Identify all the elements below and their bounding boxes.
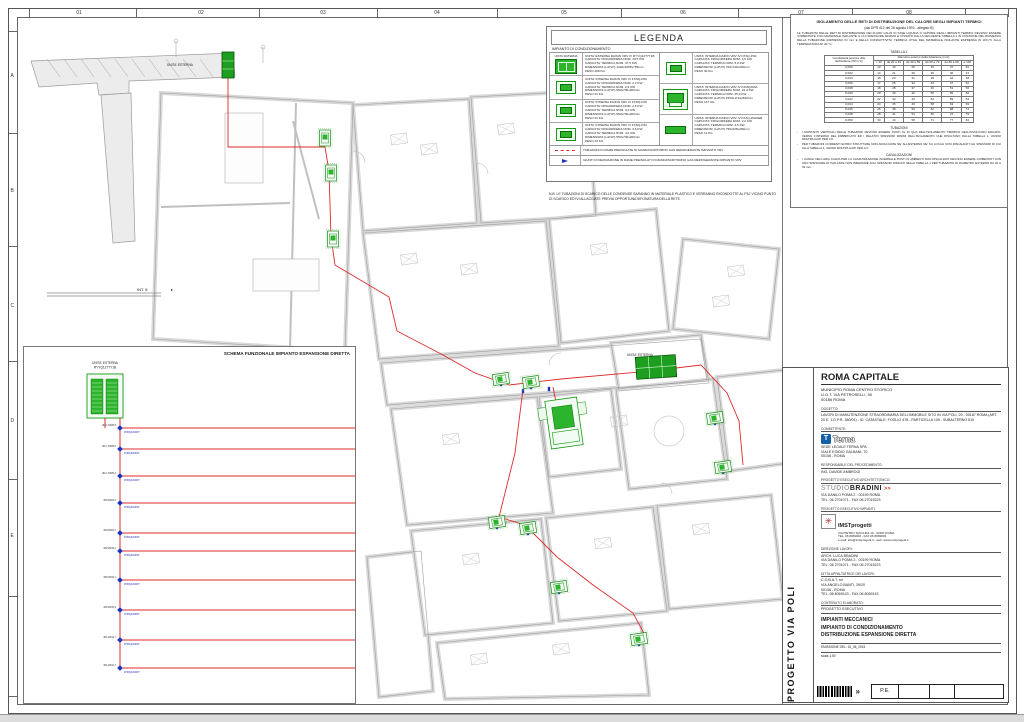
trunk-pipe-label: Ø9,5/Ø19,1: [104, 576, 117, 579]
insulation-table: Conduttività termica utile dell'isolante…: [824, 55, 974, 124]
legend-item-text: UNITA' INTERNA DAIKIN VRV IV FXMQ200ACAP…: [693, 84, 760, 114]
legend-item-icon-cell: [660, 53, 693, 83]
ruler-letter: A: [11, 73, 14, 79]
legend-icon-label: UNITA' ESTERNA: [555, 54, 578, 58]
ruler-number: 05: [561, 10, 567, 16]
schema-panel: SCHEMA FUNZIONALE IMPIANTO ESPANSIONE DI…: [23, 346, 356, 704]
refnet-joint-icon: [117, 665, 123, 671]
fxsq-unit-icon: [666, 62, 686, 75]
trunk-pipe-label: Ø12,7/Ø25,4: [102, 472, 116, 475]
legend-item-text: UNITA' INTERNA DAIKIN VRV IV FXSQ-P20CAP…: [583, 76, 649, 98]
ruler-letter: E: [11, 533, 14, 539]
survey-marker: [261, 45, 265, 63]
legend-item: UNITA' INTERNA DAIKIN VRV IV FXAQ-20AVEB…: [660, 115, 769, 145]
barcode-icon: [817, 686, 853, 697]
ruler-tick: [9, 596, 17, 597]
progetto-esecutivo: PROGETTO ESECUTIVO: [821, 607, 1001, 614]
joint-model-label: KHRQ22M20T: [124, 671, 140, 674]
table-cell: 77: [942, 118, 961, 123]
legend-item: UNITA' INTERNA DAIKIN VRV IV FXSQ-P20CAP…: [550, 76, 659, 99]
joint-model-label: KHRQ22M20T: [124, 643, 140, 646]
legend-column-left: UNITA' ESTERNAUNITA' ESTERNA DAIKIN VRV …: [550, 53, 659, 145]
schema-unit-branch: KHRQ22M20TØ9,5/Ø15,9Ø6,4/Ø12,710-UFFICI …: [104, 596, 355, 624]
refnet-joint-icon: [117, 500, 123, 506]
ruler-tick: [497, 9, 498, 17]
resp-label: RESPONSABILE DEL PROCEDIMENTO:: [821, 463, 1001, 469]
ruler-tick: [9, 696, 17, 697]
plan-outdoor-unit-label: UNITA' ESTERNA: [627, 353, 653, 357]
spec-table-title: TABELLA 1: [797, 50, 1001, 54]
trunk-pipe-label: Ø9,5/Ø22,2: [104, 499, 117, 502]
legend-text-line: PESO 11 KG: [695, 132, 763, 136]
legend-line-items: TUBAZIONI IN RAME PREISOLATE DI MANDATA/…: [549, 146, 769, 166]
table-cell: 30: [873, 118, 884, 123]
ditta-label: DITTA APPALTATRICE DEI LAVORI:: [821, 572, 1001, 578]
trunk-pipe-label: Ø12,7/Ø28,6: [102, 445, 116, 448]
refnet-joint-icon: [117, 530, 123, 536]
table-row-header: Conduttività termica utile dell'isolante…: [824, 55, 873, 65]
legend-item-icon-cell: [660, 115, 693, 145]
studio-line: TEL. 06 2701071 - FAX 06 27019223: [821, 498, 1001, 503]
spec-note: -PER TUBAZIONI CORRENTI ENTRO STRUTTURE …: [797, 143, 1001, 151]
legend-item: UNITA' ESTERNAUNITA' ESTERNA DAIKIN VRV …: [550, 53, 659, 76]
meeting-table: [225, 113, 263, 183]
joint-model-label: KHRQ22M20T: [124, 431, 140, 434]
trunk-pipe-label: Ø9,5/Ø15,9: [104, 606, 117, 609]
imst-line: e-mail: info@imstprogetti.it - web: www.…: [838, 539, 908, 543]
refnet-joint-icon: [117, 607, 123, 613]
table-cell: 44: [884, 118, 903, 123]
legend-text-line: PESO 23 KG: [585, 140, 647, 144]
joint-model-label: KHRQ22M20T: [124, 554, 140, 557]
legend-note: N.B. LE TUBAZIONI DI SCARICO DELLE CONDE…: [549, 192, 779, 201]
title-block: PROGETTO VIA POLI ROMA CAPITALE MUNICIPI…: [782, 367, 1009, 703]
drawing-sheet: 0102030405060708 ABCDE UNITA' ESTERNA UN…: [8, 8, 1017, 714]
joint-model-label: KHRQ22M20T: [124, 536, 140, 539]
oggetto-label: OGGETTO:: [821, 407, 1001, 413]
meeting-table: [253, 259, 319, 291]
joint-model-label: KHRQ22M20T: [124, 479, 140, 482]
legend-text-line: PESO 21 KG: [585, 93, 647, 97]
legend-item-text: UNITA' INTERNA DAIKIN VRV IV FXSQ-P40CAP…: [693, 53, 759, 83]
schema-unit-branch: KHRQ22M20TØ9,5/Ø19,1Ø6,4/Ø12,709-ARCHIVI…: [104, 566, 355, 594]
schema-unit-branch: KHRQ22M20TØ12,7/Ø28,6Ø6,4/Ø12,701-UFFICI…: [102, 435, 355, 463]
spec-note-text: PER TUBAZIONI CORRENTI ENTRO STRUTTURE N…: [802, 143, 1001, 151]
refnet-joint-icon: [117, 548, 123, 554]
refnet-joint-icon: [117, 425, 123, 431]
room-wall: [549, 209, 669, 343]
terna-logo-word: Terna: [833, 434, 856, 444]
direzione-lavori-label: DIREZIONE LAVORI:: [821, 547, 1001, 553]
legend-item: UNITA' INTERNA DAIKIN VRV IV FXSQ-P40CAP…: [660, 53, 769, 84]
legend-text-line: PESO 21 KG: [585, 117, 647, 121]
fxaq-unit-icon: [665, 126, 686, 134]
table-cell: 71: [923, 118, 942, 123]
schema-unit-branch: KHRQ22M20TØ9,5/Ø22,2Ø6,4/Ø12,706-SALA RI…: [104, 519, 355, 547]
legend-item-text: UNITA' INTERNA DAIKIN VRV IV FXSQ-P25CAP…: [583, 100, 649, 122]
spec-canal-text: I CANALI DELL'ARIA CALDA PER LA CLIMATIZ…: [802, 158, 1001, 169]
terna-line: 00156 - ROMA: [821, 454, 1001, 459]
refnet-joint-icon: [117, 446, 123, 452]
ruler-tick: [9, 133, 17, 134]
legend-line-item: TUBAZIONI IN RAME PREISOLATE DI MANDATA/…: [549, 146, 769, 156]
joint-model-label: KHRQ22M20T: [124, 583, 140, 586]
schema-unit-branch: KHRQ22M20TØ12,7/Ø28,6Ø6,4/Ø12,702-SEGRET…: [102, 414, 355, 442]
trunk-pipe-label: Ø6,4/Ø12,7: [104, 636, 117, 639]
ruler-tick: [1008, 9, 1009, 17]
schema-unit-branch: KHRQ22M20TØ6,4/Ø12,7Ø6,4/Ø12,712-IMPIANT…: [104, 660, 355, 684]
oggetto-text: LAVORI DI MANUTENZIONE STRAORDINARIA DEL…: [821, 413, 1001, 422]
spec-notes: -I MONTANTI VERTICALI DELLE TUBAZIONI DE…: [797, 131, 1001, 151]
schema-unit-branch: KHRQ22M20TØ9,5/Ø22,2Ø9,5/Ø22,205-SALA FO…: [104, 488, 355, 517]
empty-cell: [929, 685, 954, 698]
room-wall: [363, 221, 559, 359]
table-cell: 84: [961, 118, 974, 123]
room-wall: [411, 519, 553, 635]
ruler-tick: [9, 479, 17, 480]
spec-subtitle: (dal DPR 412 del 26 agosto 1993 - allega…: [797, 26, 1001, 30]
table-cell: 58: [904, 118, 923, 123]
fxsq-unit-icon: [324, 164, 338, 183]
dl-line: TEL. 06 2701071 - FAX 06 27019223: [821, 563, 1001, 568]
room-wall: [673, 239, 779, 339]
ruler-tick: [136, 9, 137, 17]
legend-item-text: UNITA' ESTERNA DAIKIN VRV IV RYYQ12T7Y1B…: [583, 53, 657, 75]
schema-outdoor-model: RYYQ12T7Y1B: [94, 366, 116, 370]
contenuto-label: CONTENUTO ELABORATO:: [821, 601, 1001, 607]
ruler-number: 06: [680, 10, 686, 16]
legend-item-icon-cell: UNITA' ESTERNA: [550, 53, 583, 75]
condensate-joint-icon: [522, 389, 524, 393]
table-row: 0,050304458717784: [824, 118, 973, 123]
schema-outdoor-label: UNITA' ESTERNA: [92, 361, 119, 365]
content-line: DISTRIBUZIONE ESPANSIONE DIRETTA: [821, 632, 1001, 640]
legend-item-text: UNITA' INTERNA DAIKIN VRV IV FXAQ-20AVEB…: [693, 115, 765, 145]
ruler-tick: [9, 31, 17, 32]
legend-line-item: GIUNTI DI DERIVAZIONE IN RAME PREISOLATI…: [549, 156, 769, 166]
room-wall: [657, 495, 783, 609]
blue-joint-icon: [550, 156, 581, 165]
room-wall: [353, 99, 477, 231]
resp-name: ING. DAVIDE AMBROGI: [821, 470, 1001, 475]
committente-label: COMMITTENTE:: [821, 427, 1001, 433]
trunk-pipe-label: Ø9,5/Ø22,2: [104, 529, 117, 532]
legend-item-icon-cell: [660, 84, 693, 114]
client-line: 00186 ROMA: [821, 397, 1001, 402]
ruler-tick: [621, 9, 622, 17]
empty-cell: [954, 685, 1003, 698]
fxsq-unit-icon: [556, 104, 576, 117]
ruler-letter: D: [11, 418, 15, 424]
room-wall: [546, 507, 667, 621]
ruler-letter: C: [11, 303, 15, 309]
legend-item: UNITA' INTERNA DAIKIN VRV IV FXMQ200ACAP…: [660, 84, 769, 115]
schema-unit-branch: KHRQ22M20TØ12,7/Ø25,4Ø6,4/Ø12,704-SALA R…: [102, 462, 355, 490]
legend-item-text: UNITA' INTERNA DAIKIN VRV IV FXSQ-P32CAP…: [583, 123, 649, 145]
legend-subtitle: IMPIANTO DI CONDIZIONAMENTO: [552, 47, 769, 51]
studio-arrows-icon: >>: [884, 486, 891, 492]
legend-text-line: PESO 30 KG: [695, 70, 757, 74]
room-wall: [391, 397, 553, 525]
ruler-tick: [377, 9, 378, 17]
fxmq-unit-icon: [663, 89, 688, 110]
legend-text-line: PESO 268 KG: [585, 70, 655, 74]
legend-item-icon-cell: [550, 76, 583, 98]
legend-item: UNITA' INTERNA DAIKIN VRV IV FXSQ-P32CAP…: [550, 123, 659, 145]
table-cell: 0,050: [824, 118, 873, 123]
blue-joint-glyph: [562, 159, 568, 163]
content-line: IMPIANTO DI CONDIZIONAMENTO: [821, 625, 1001, 633]
title-block-footer: » P.E.: [817, 684, 1004, 698]
schema-unit-branch: KHRQ22M20TØ6,4/Ø12,7Ø6,4/Ø12,711-SALA RI…: [104, 626, 355, 654]
room-wall: [616, 379, 727, 489]
ruler-number: 04: [434, 10, 440, 16]
impianti-label: PROGETTO ESECUTIVO IMPIANTI:: [821, 507, 1001, 513]
schema-diagram: UNITA' ESTERNARYYQ12T7Y1BKHRQ22M20TØ12,7…: [24, 347, 355, 703]
imst-name: IMSTprogetti: [838, 523, 872, 529]
project-vertical-title: PROGETTO VIA POLI: [786, 498, 810, 702]
refnet-joint-icon: [117, 577, 123, 583]
ruler-left: ABCDE: [9, 9, 17, 713]
legend-line-text: GIUNTI DI DERIVAZIONE IN RAME PREISOLATI…: [581, 157, 744, 164]
refnet-joint-icon: [117, 637, 123, 643]
outdoor-unit-icon: [555, 59, 577, 74]
red-dashed-line-glyph: [555, 150, 575, 151]
pe-cell: P.E.: [872, 685, 898, 698]
ruler-tick: [9, 246, 17, 247]
spec-intro: LE TUBAZIONI DELLE RETI DI DISTRIBUZIONE…: [797, 32, 1001, 48]
trunk-pipe-label: Ø12,7/Ø28,6: [102, 424, 116, 427]
condensate-joint-icon: [548, 387, 550, 391]
schema-outdoor-unit: UNITA' ESTERNARYYQ12T7Y1B: [87, 361, 123, 418]
joint-model-label: KHRQ22M20T: [124, 613, 140, 616]
spec-note: -I MONTANTI VERTICALI DELLE TUBAZIONI DE…: [797, 131, 1001, 142]
legend-text-line: PESO 137 KG: [695, 101, 758, 105]
fxsq-unit-icon: [556, 81, 576, 94]
int8-label: INT. 8: [137, 287, 147, 292]
plan-outdoor-unit-label: UNITA' ESTERNA: [167, 63, 193, 67]
scala: scala 1:50: [821, 652, 1001, 658]
legend-title: LEGENDA: [551, 30, 767, 45]
legend-item-icon-cell: [550, 123, 583, 145]
spec-note-text: I MONTANTI VERTICALI DELLE TUBAZIONI DEV…: [802, 131, 1001, 142]
arch-label: PROGETTO ESECUTIVO ARCHITETTONICO:: [821, 478, 1001, 484]
ruler-number: 02: [198, 10, 204, 16]
imst-logo: ✳ IMSTprogetti VIA PIETRO TACCHINI 19 - …: [821, 514, 1001, 544]
revision-strip: P.E.: [871, 684, 1004, 699]
client-name: ROMA CAPITALE: [821, 372, 1001, 385]
terna-logo-icon: T: [821, 434, 831, 444]
title-block-content: ROMA CAPITALE MUNICIPIO ROMA CENTRO STOR…: [813, 368, 1008, 702]
ext-s-unit-icon: [222, 52, 234, 78]
legend-column-right: UNITA' INTERNA DAIKIN VRV IV FXSQ-P40CAP…: [659, 53, 769, 145]
spec-panel: ISOLAMENTO DELLE RETI DI DISTRIBUZIONE D…: [790, 14, 1008, 208]
trunk-pipe-label: Ø6,4/Ø12,7: [104, 664, 117, 667]
ruler-tick: [9, 361, 17, 362]
joint-model-label: KHRQ22M20T: [124, 452, 140, 455]
arrows-icon: »: [856, 687, 860, 696]
legend-line-text: TUBAZIONI IN RAME PREISOLATE DI MANDATA/…: [581, 147, 725, 154]
content-line: IMPIANTI MECCANICI: [821, 617, 1001, 625]
ruler-number: 01: [76, 10, 82, 16]
ext-l-unit-icon: [635, 355, 676, 380]
legend-item: UNITA' INTERNA DAIKIN VRV IV FXSQ-P25CAP…: [550, 100, 659, 123]
legend-grid: UNITA' ESTERNAUNITA' ESTERNA DAIKIN VRV …: [549, 52, 769, 146]
legend-panel: LEGENDA IMPIANTO DI CONDIZIONAMENTO UNIT…: [546, 26, 772, 182]
ditta-line: TEL. 06 8069143 - FAX 06 8069143: [821, 592, 1001, 597]
spec-canal-note: -I CANALI DELL'ARIA CALDA PER LA CLIMATI…: [797, 158, 1001, 169]
legend-item-icon-cell: [550, 100, 583, 122]
ruler-number: 03: [320, 10, 326, 16]
spec-canal-notes: -I CANALI DELL'ARIA CALDA PER LA CLIMATI…: [797, 158, 1001, 169]
emissione-date: EMISSIONE DEL: 15_06_2015: [821, 643, 1001, 649]
schema-unit-branch: KHRQ22M20TØ9,5/Ø19,1Ø6,4/Ø12,708-UFFICIO…: [104, 537, 355, 565]
studio-word-1: STUDIO: [821, 485, 850, 492]
studio-word-2: BRADINI: [850, 485, 882, 492]
room-wall: [437, 623, 649, 699]
red-dashed-line-icon: [550, 146, 581, 155]
survey-marker: [174, 39, 178, 57]
ruler-tick: [259, 9, 260, 17]
ruler-letter: B: [11, 188, 14, 194]
joint-model-label: KHRQ22M20T: [124, 506, 140, 509]
trunk-pipe-label: Ø9,5/Ø19,1: [104, 547, 117, 550]
terna-logo: T Terna: [821, 434, 1001, 444]
spec-title: ISOLAMENTO DELLE RETI DI DISTRIBUZIONE D…: [797, 19, 1001, 24]
ruler-tick: [738, 9, 739, 17]
fxsq-unit-icon: [318, 129, 332, 148]
fxsq-unit-icon: [326, 230, 340, 249]
int8-marker-icon: ▸: [171, 287, 173, 292]
imst-logo-icon: ✳: [821, 514, 836, 529]
ruler-tick: [29, 9, 30, 17]
refnet-joint-icon: [117, 473, 123, 479]
studio-bradini-logo: STUDIOBRADINI >>: [821, 485, 1001, 492]
fxsq-unit-icon: [556, 128, 576, 141]
empty-cell: [898, 685, 929, 698]
